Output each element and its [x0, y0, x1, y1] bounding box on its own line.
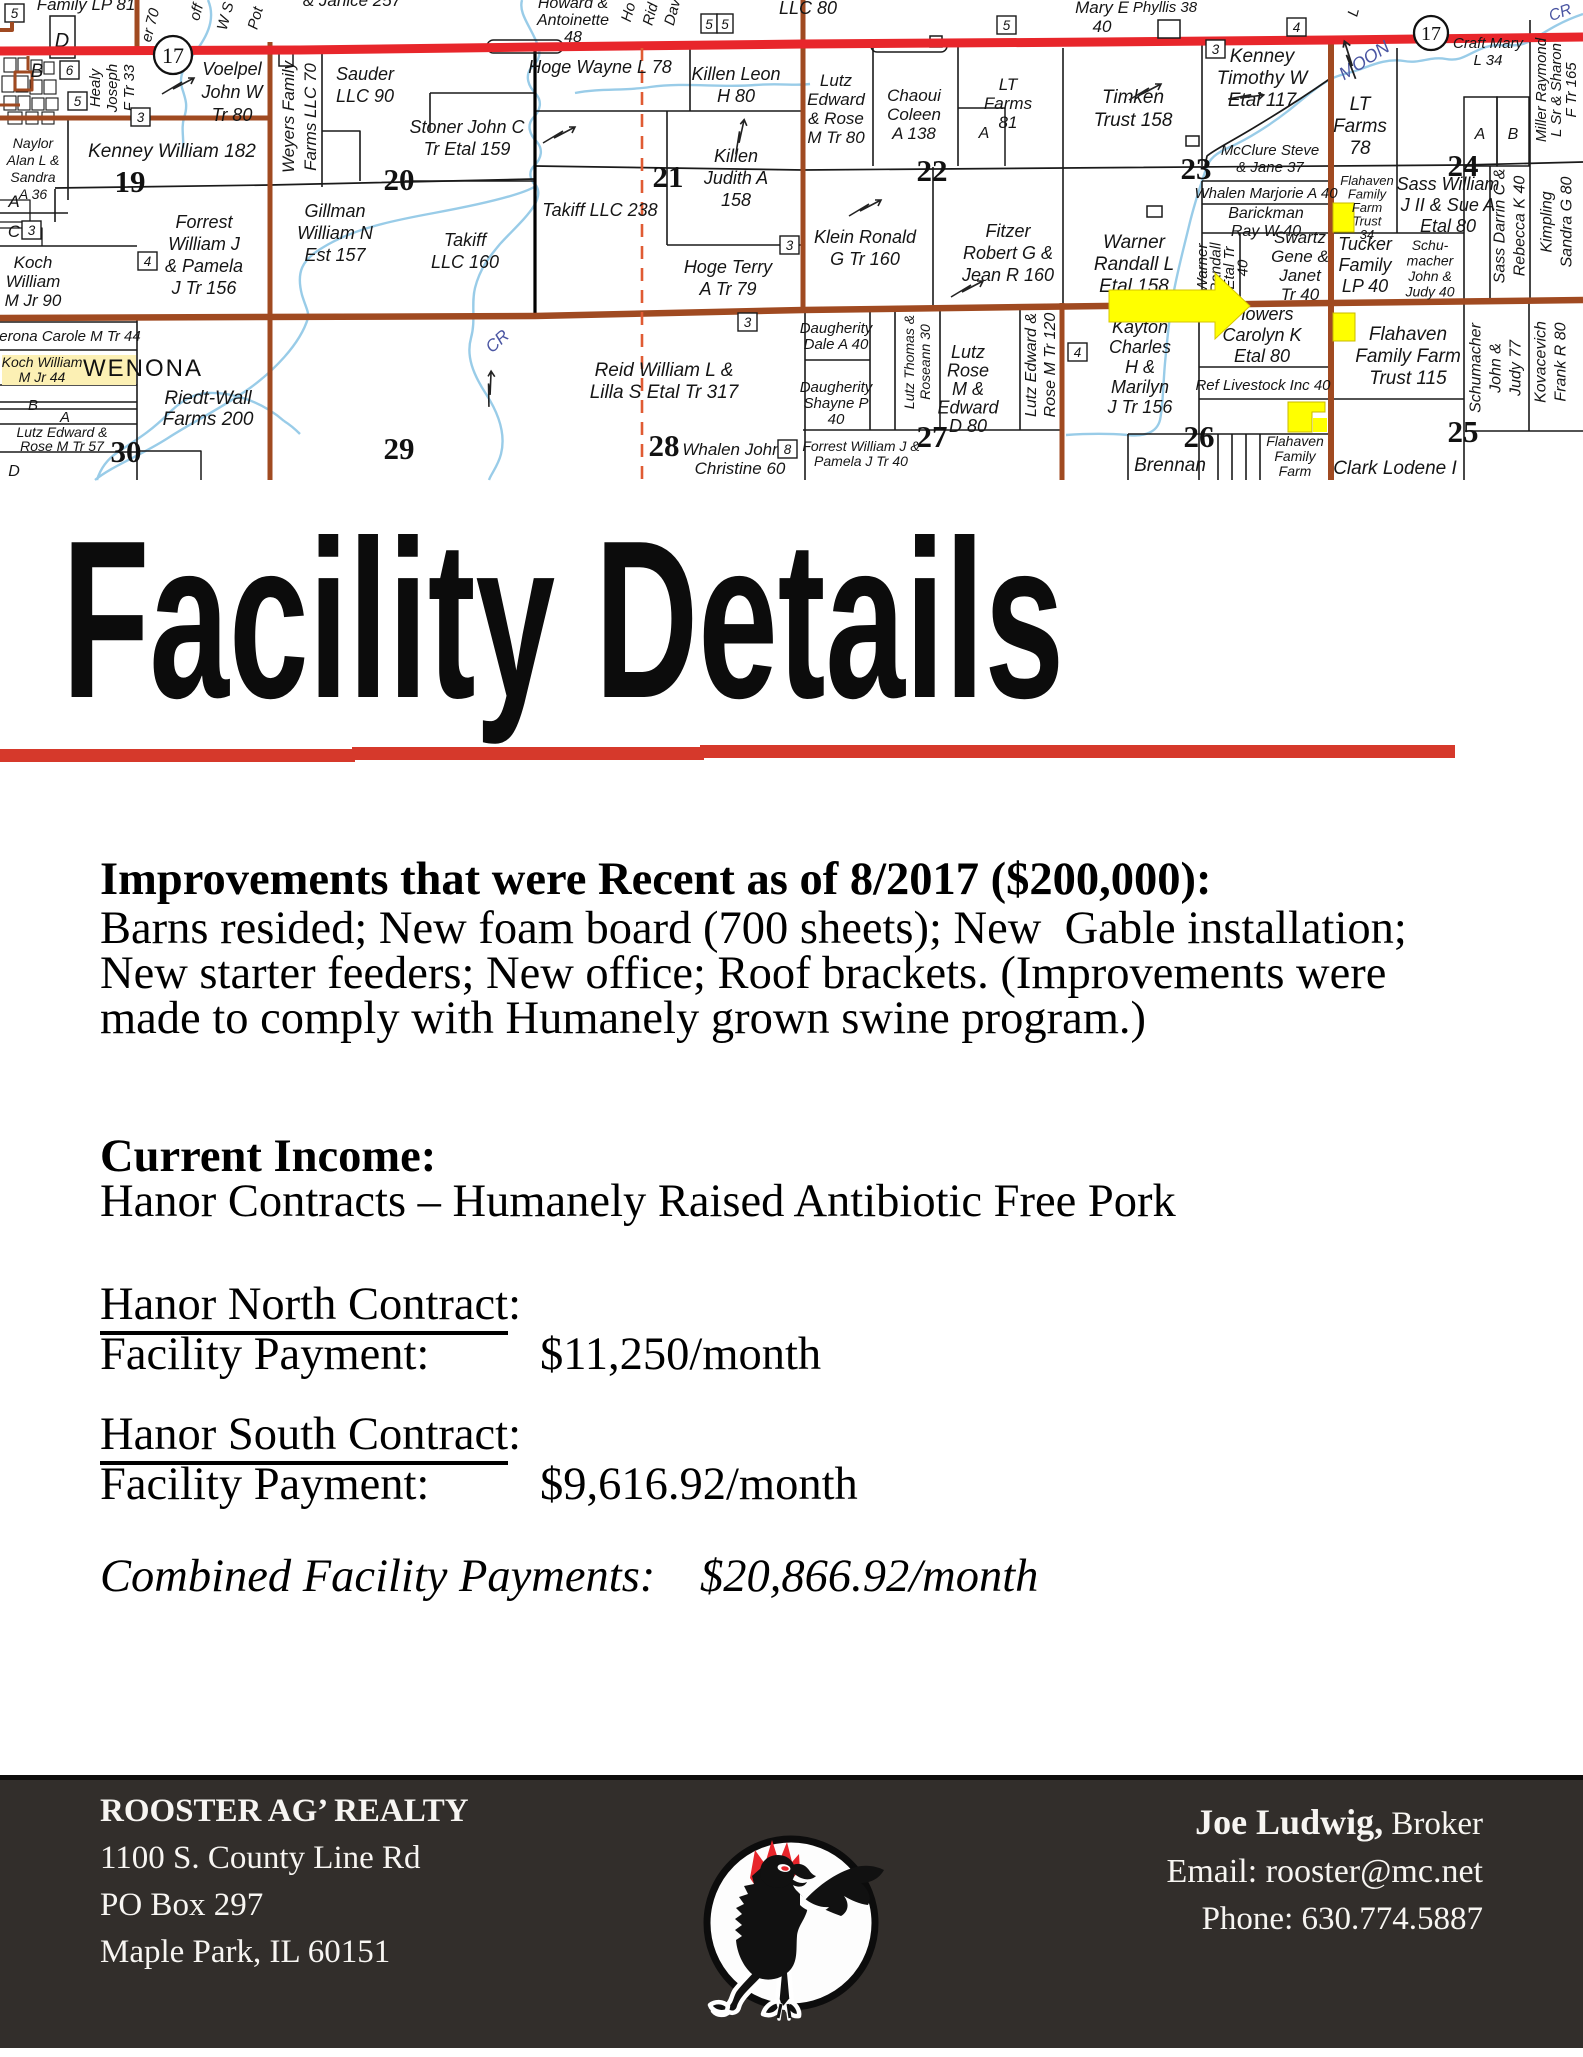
- svg-text:78: 78: [1349, 138, 1371, 159]
- svg-text:40: 40: [1093, 17, 1112, 36]
- svg-text:Judy 40: Judy 40: [1404, 284, 1454, 300]
- svg-text:158: 158: [721, 190, 751, 210]
- svg-text:Family: Family: [1339, 255, 1393, 275]
- svg-text:Tr 80: Tr 80: [212, 105, 253, 125]
- svg-text:G Tr 160: G Tr 160: [830, 249, 900, 269]
- svg-text:CR: CR: [482, 326, 513, 357]
- svg-text:Trust 115: Trust 115: [1369, 368, 1447, 389]
- svg-text:McClure Steve: McClure Steve: [1221, 142, 1319, 159]
- svg-text:A 36: A 36: [18, 186, 47, 202]
- svg-text:Pot: Pot: [245, 4, 267, 31]
- svg-text:27: 27: [917, 419, 948, 454]
- svg-text:4: 4: [1293, 20, 1301, 35]
- svg-text:Voelpel: Voelpel: [202, 59, 262, 79]
- svg-text:3: 3: [786, 238, 794, 253]
- svg-text:17: 17: [1421, 23, 1441, 45]
- svg-text:John W: John W: [200, 82, 264, 102]
- svg-text:Takiff: Takiff: [444, 230, 488, 250]
- svg-text:Sandra G 80: Sandra G 80: [1559, 177, 1576, 268]
- svg-text:Sandra: Sandra: [10, 169, 55, 185]
- svg-text:Carolyn K: Carolyn K: [1222, 325, 1302, 345]
- svg-text:Brennan: Brennan: [1134, 455, 1206, 476]
- svg-text:5: 5: [74, 94, 82, 109]
- svg-text:Forrest William J &: Forrest William J &: [802, 438, 919, 454]
- svg-text:Roseann 30: Roseann 30: [917, 324, 933, 400]
- svg-text:Perona Carole M Tr 44: Perona Carole M Tr 44: [0, 328, 141, 345]
- svg-text:M Jr 90: M Jr 90: [5, 291, 62, 310]
- svg-text:Clark Lodene I: Clark Lodene I: [1333, 458, 1457, 479]
- svg-text:macher: macher: [1407, 253, 1455, 269]
- svg-text:Etal 80: Etal 80: [1420, 216, 1476, 236]
- svg-text:Kimpling: Kimpling: [1539, 191, 1556, 252]
- svg-text:30: 30: [111, 434, 142, 469]
- svg-text:Whalen Marjorie A 40: Whalen Marjorie A 40: [1194, 185, 1338, 202]
- svg-text:5: 5: [721, 17, 729, 32]
- svg-text:Dav: Dav: [661, 0, 685, 27]
- svg-text:3: 3: [28, 223, 36, 238]
- svg-text:William: William: [6, 272, 61, 291]
- svg-text:Schu-: Schu-: [1412, 237, 1449, 253]
- svg-text:Gene &: Gene &: [1271, 247, 1329, 266]
- svg-text:21: 21: [653, 159, 684, 194]
- svg-text:er 70: er 70: [138, 6, 163, 44]
- svg-text:Janet: Janet: [1278, 266, 1322, 285]
- svg-text:26: 26: [1184, 419, 1215, 454]
- svg-text:L 34: L 34: [1474, 52, 1503, 69]
- svg-text:Charles: Charles: [1109, 337, 1171, 357]
- svg-text:6: 6: [66, 63, 74, 78]
- svg-text:Etal 117: Etal 117: [1228, 90, 1298, 111]
- svg-text:off: off: [186, 0, 207, 22]
- svg-text:17: 17: [162, 43, 184, 68]
- svg-text:Robert G &: Robert G &: [963, 243, 1053, 263]
- svg-text:Family Farm: Family Farm: [1355, 346, 1461, 367]
- svg-text:3: 3: [744, 315, 752, 330]
- svg-text:Dale A 40: Dale A 40: [804, 336, 869, 353]
- svg-text:Mary E: Mary E: [1075, 0, 1130, 17]
- svg-text:LLC 160: LLC 160: [431, 252, 499, 272]
- svg-text:Kovacevich: Kovacevich: [1533, 321, 1550, 403]
- svg-text:Ho: Ho: [618, 1, 639, 24]
- svg-text:WENONA: WENONA: [83, 355, 203, 382]
- svg-text:Swartz: Swartz: [1274, 228, 1326, 247]
- svg-text:& Jane 37: & Jane 37: [1236, 159, 1304, 176]
- svg-text:Lutz: Lutz: [951, 342, 985, 362]
- svg-text:Chaoui: Chaoui: [887, 86, 942, 105]
- svg-text:Kenney William 182: Kenney William 182: [88, 141, 256, 162]
- svg-text:Fitzer: Fitzer: [986, 221, 1032, 241]
- svg-text:Farms 200: Farms 200: [163, 409, 254, 430]
- svg-text:LT: LT: [999, 75, 1019, 94]
- svg-text:Warner: Warner: [1103, 232, 1166, 253]
- svg-text:Est 157: Est 157: [304, 245, 366, 265]
- svg-text:Edward: Edward: [937, 398, 999, 418]
- svg-text:Healy: Healy: [87, 67, 104, 107]
- svg-text:J Tr 156: J Tr 156: [1107, 397, 1174, 417]
- svg-text:J Tr 156: J Tr 156: [171, 278, 238, 298]
- svg-text:Ref Livestock Inc 40: Ref Livestock Inc 40: [1195, 377, 1331, 394]
- svg-text:F Tr 165: F Tr 165: [1563, 62, 1580, 118]
- svg-text:LLC 80: LLC 80: [779, 0, 837, 18]
- svg-text:Koch William: Koch William: [2, 354, 83, 370]
- svg-text:C: C: [8, 222, 21, 241]
- svg-text:Tr Etal 159: Tr Etal 159: [424, 139, 511, 159]
- svg-text:Alan L &: Alan L &: [6, 152, 60, 168]
- svg-text:William J: William J: [168, 234, 241, 254]
- svg-text:Rose M Tr 57: Rose M Tr 57: [20, 438, 105, 454]
- svg-text:D: D: [8, 463, 20, 480]
- svg-text:A: A: [978, 125, 990, 142]
- svg-text:40: 40: [828, 411, 845, 428]
- svg-text:Koch: Koch: [14, 253, 53, 272]
- svg-text:Timothy W: Timothy W: [1217, 68, 1310, 89]
- svg-text:Sauder: Sauder: [336, 64, 395, 84]
- svg-text:Etal 80: Etal 80: [1234, 346, 1290, 366]
- svg-text:Reid William L &: Reid William L &: [595, 360, 734, 381]
- svg-text:Kenney: Kenney: [1230, 46, 1296, 67]
- svg-text:Klein Ronald: Klein Ronald: [814, 227, 917, 247]
- svg-text:Farms: Farms: [1333, 116, 1387, 137]
- svg-text:Judy 77: Judy 77: [1508, 339, 1525, 397]
- svg-text:Family: Family: [1274, 448, 1316, 464]
- svg-text:& Rose: & Rose: [808, 109, 864, 128]
- svg-text:B: B: [31, 61, 44, 82]
- svg-text:A 138: A 138: [891, 124, 936, 143]
- svg-text:Lutz Thomas &: Lutz Thomas &: [901, 315, 917, 409]
- svg-text:L: L: [1344, 6, 1363, 18]
- svg-text:Pamela J Tr 40: Pamela J Tr 40: [814, 453, 908, 469]
- svg-text:81: 81: [999, 113, 1018, 132]
- svg-text:F Tr 33: F Tr 33: [121, 64, 138, 112]
- svg-text:Tucker: Tucker: [1338, 234, 1393, 254]
- svg-text:4: 4: [1074, 345, 1082, 360]
- svg-text:J II & Sue A: J II & Sue A: [1400, 195, 1495, 215]
- svg-text:LT: LT: [1350, 94, 1372, 115]
- svg-text:29: 29: [384, 431, 415, 466]
- svg-text:A: A: [1474, 126, 1486, 143]
- svg-text:Barickman: Barickman: [1228, 205, 1304, 222]
- svg-text:Trust 158: Trust 158: [1094, 110, 1173, 131]
- svg-text:Farms LLC 70: Farms LLC 70: [301, 63, 320, 171]
- svg-text:Sass Darrin C &: Sass Darrin C &: [1492, 169, 1509, 284]
- svg-text:Rose M Tr 120: Rose M Tr 120: [1042, 313, 1059, 418]
- svg-text:Craft Mary: Craft Mary: [1453, 35, 1525, 52]
- svg-text:Howard &: Howard &: [538, 0, 608, 12]
- svg-text:Christine 60: Christine 60: [695, 459, 786, 478]
- svg-text:Stoner John C: Stoner John C: [409, 117, 525, 137]
- svg-text:Farms: Farms: [984, 94, 1033, 113]
- svg-text:Rose: Rose: [947, 361, 989, 381]
- svg-text:Coleen: Coleen: [887, 105, 941, 124]
- svg-text:40: 40: [1235, 259, 1252, 276]
- svg-text:Daugherity: Daugherity: [800, 320, 874, 337]
- svg-text:Tr 40: Tr 40: [1281, 285, 1320, 304]
- svg-text:Killen Leon: Killen Leon: [691, 64, 780, 84]
- svg-text:Schumacher: Schumacher: [1468, 322, 1485, 412]
- svg-text:3: 3: [1212, 42, 1220, 57]
- svg-text:Marilyn: Marilyn: [1111, 377, 1169, 397]
- svg-text:Gillman: Gillman: [304, 201, 365, 221]
- svg-text:Rebecca K 40: Rebecca K 40: [1512, 176, 1529, 277]
- svg-text:A Tr 79: A Tr 79: [698, 279, 756, 299]
- svg-text:LLC 90: LLC 90: [336, 86, 394, 106]
- svg-text:Hoge Wayne L 78: Hoge Wayne L 78: [528, 57, 671, 77]
- svg-text:48: 48: [564, 29, 582, 46]
- svg-text:8: 8: [784, 442, 792, 457]
- svg-text:Frank R 80: Frank R 80: [1553, 322, 1570, 401]
- svg-text:Flahaven: Flahaven: [1266, 433, 1324, 449]
- svg-text:LP 40: LP 40: [1342, 276, 1388, 296]
- svg-text:B: B: [1508, 126, 1519, 143]
- svg-text:M &: M &: [952, 379, 984, 399]
- svg-text:Edward: Edward: [807, 90, 865, 109]
- svg-text:22: 22: [917, 153, 948, 188]
- svg-text:M Jr 44: M Jr 44: [19, 369, 66, 385]
- svg-text:Lilla S Etal Tr 317: Lilla S Etal Tr 317: [590, 382, 740, 403]
- svg-text:20: 20: [384, 162, 415, 197]
- svg-text:Lutz Edward &: Lutz Edward &: [1023, 313, 1040, 417]
- svg-text:Phyllis 38: Phyllis 38: [1133, 0, 1198, 16]
- svg-text:Lutz: Lutz: [820, 71, 853, 90]
- svg-text:Antoinette: Antoinette: [536, 12, 609, 29]
- svg-text:D 80: D 80: [949, 416, 987, 436]
- svg-text:Takiff LLC 238: Takiff LLC 238: [542, 200, 657, 220]
- svg-text:B: B: [28, 397, 38, 414]
- svg-text:W S: W S: [214, 0, 238, 32]
- svg-text:Family LP 81: Family LP 81: [37, 0, 136, 14]
- svg-text:John &: John &: [1407, 268, 1452, 284]
- svg-text:23: 23: [1181, 151, 1212, 186]
- svg-text:Rid: Rid: [640, 0, 662, 27]
- svg-text:Weyers Family: Weyers Family: [279, 59, 298, 173]
- svg-text:28: 28: [649, 428, 680, 463]
- svg-text:5: 5: [11, 6, 19, 21]
- svg-text:Flahaven: Flahaven: [1369, 324, 1447, 345]
- svg-text:5: 5: [705, 17, 713, 32]
- svg-text:4: 4: [144, 254, 152, 269]
- svg-text:Farm: Farm: [1279, 463, 1312, 479]
- svg-text:H &: H &: [1125, 357, 1155, 377]
- svg-text:Joseph: Joseph: [104, 64, 121, 113]
- svg-text:& Janice 257: & Janice 257: [303, 0, 402, 10]
- svg-text:Shayne P: Shayne P: [803, 395, 868, 412]
- svg-text:CR: CR: [1547, 1, 1575, 25]
- svg-text:Forrest: Forrest: [175, 212, 233, 232]
- svg-text:John &: John &: [1488, 343, 1505, 394]
- svg-text:Judith A: Judith A: [703, 168, 768, 188]
- svg-text:Naylor: Naylor: [13, 135, 55, 151]
- svg-text:A: A: [7, 192, 19, 211]
- svg-text:William N: William N: [297, 223, 374, 243]
- svg-text:5: 5: [1003, 18, 1011, 33]
- svg-text:Jean R 160: Jean R 160: [961, 265, 1054, 285]
- svg-text:25: 25: [1448, 414, 1479, 449]
- svg-text:& Pamela: & Pamela: [165, 256, 243, 276]
- svg-text:M Tr 80: M Tr 80: [807, 128, 865, 147]
- svg-text:Randall L: Randall L: [1094, 254, 1174, 275]
- svg-text:H 80: H 80: [717, 86, 755, 106]
- svg-text:Daugherity: Daugherity: [800, 379, 874, 396]
- svg-text:Hoge Terry: Hoge Terry: [684, 257, 773, 277]
- svg-text:3: 3: [137, 110, 145, 125]
- svg-text:19: 19: [115, 164, 146, 199]
- svg-text:Riedt-Wall: Riedt-Wall: [164, 388, 252, 409]
- svg-text:Sass William: Sass William: [1397, 174, 1500, 194]
